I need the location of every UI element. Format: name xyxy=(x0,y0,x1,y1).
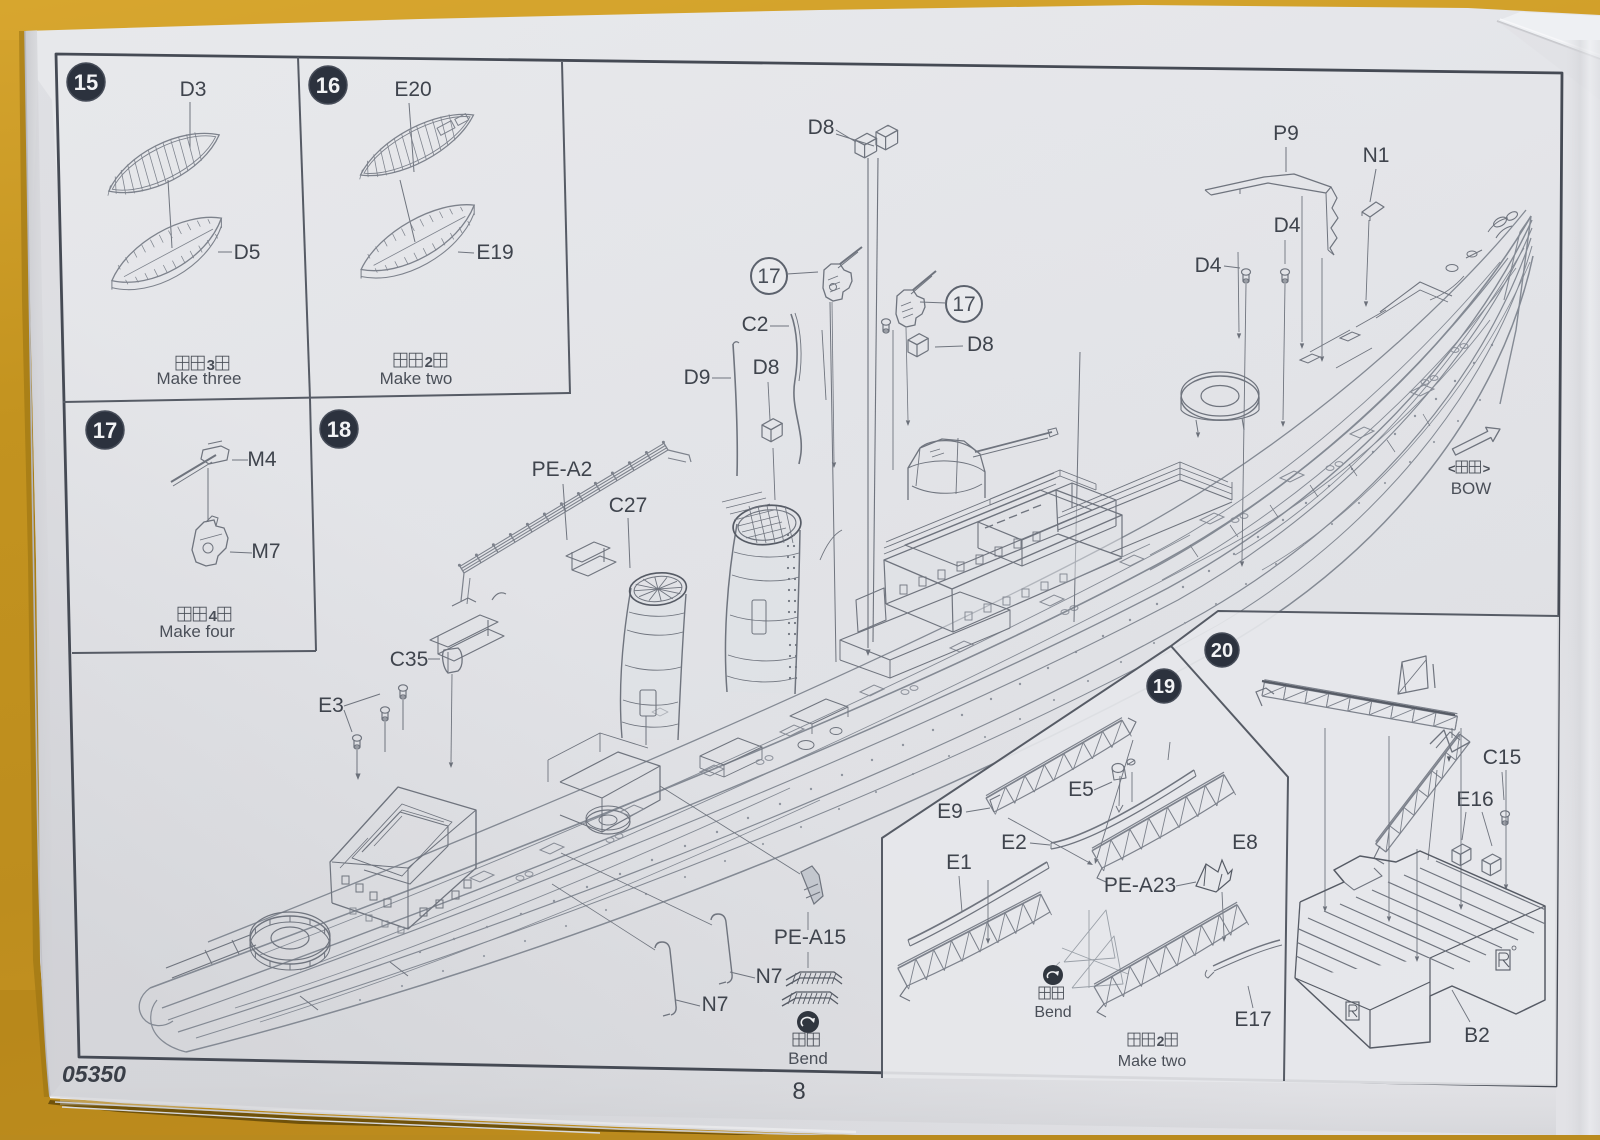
svg-text:PE-A15: PE-A15 xyxy=(774,926,846,949)
svg-text:P9: P9 xyxy=(1273,122,1299,145)
svg-text:N1: N1 xyxy=(1363,144,1390,167)
svg-text:8: 8 xyxy=(792,1078,805,1105)
svg-text:D8: D8 xyxy=(753,356,780,379)
svg-text:18: 18 xyxy=(327,417,351,442)
svg-text:E5: E5 xyxy=(1068,778,1094,801)
svg-text:19: 19 xyxy=(1153,676,1175,698)
svg-text:E9: E9 xyxy=(937,800,963,823)
svg-text:E19: E19 xyxy=(476,241,513,264)
svg-text:E3: E3 xyxy=(318,694,344,717)
svg-text:Bend: Bend xyxy=(1034,1004,1071,1021)
svg-text:Make four: Make four xyxy=(159,622,235,641)
svg-text:E17: E17 xyxy=(1234,1008,1271,1031)
svg-text:2: 2 xyxy=(1157,1033,1165,1049)
svg-text:>: > xyxy=(1483,461,1491,476)
svg-text:M7: M7 xyxy=(251,540,280,563)
svg-text:17: 17 xyxy=(93,418,117,443)
svg-text:E20: E20 xyxy=(394,78,431,101)
svg-text:17: 17 xyxy=(952,293,975,316)
svg-text:D5: D5 xyxy=(234,241,261,264)
svg-text:Make three: Make three xyxy=(156,369,241,388)
svg-text:D9: D9 xyxy=(684,366,711,389)
svg-text:17: 17 xyxy=(757,265,780,288)
svg-text:15: 15 xyxy=(74,70,98,95)
svg-text:20: 20 xyxy=(1211,640,1233,662)
svg-text:<: < xyxy=(1448,461,1456,476)
svg-text:05350: 05350 xyxy=(62,1061,126,1087)
svg-text:PE-A23: PE-A23 xyxy=(1104,874,1176,897)
svg-text:D8: D8 xyxy=(967,333,994,356)
svg-text:M4: M4 xyxy=(247,448,276,471)
svg-text:Make two: Make two xyxy=(380,369,453,388)
svg-text:C35: C35 xyxy=(390,648,429,671)
svg-text:E8: E8 xyxy=(1232,831,1258,854)
svg-text:PE-A2: PE-A2 xyxy=(532,458,593,481)
svg-text:16: 16 xyxy=(316,73,340,98)
svg-text:Make two: Make two xyxy=(1118,1053,1187,1070)
svg-text:Bend: Bend xyxy=(788,1049,828,1068)
svg-text:E16: E16 xyxy=(1456,788,1493,811)
svg-text:N7: N7 xyxy=(756,965,783,988)
svg-text:N7: N7 xyxy=(702,993,729,1016)
svg-text:C27: C27 xyxy=(609,494,648,517)
svg-text:C2: C2 xyxy=(742,313,769,336)
svg-text:D4: D4 xyxy=(1195,254,1222,277)
svg-text:C15: C15 xyxy=(1483,746,1522,769)
svg-text:B2: B2 xyxy=(1464,1024,1490,1047)
svg-text:D8: D8 xyxy=(808,116,835,139)
svg-text:D3: D3 xyxy=(180,78,207,101)
svg-text:E2: E2 xyxy=(1001,831,1027,854)
svg-text:D4: D4 xyxy=(1274,214,1301,237)
svg-text:BOW: BOW xyxy=(1451,479,1492,498)
svg-text:E1: E1 xyxy=(946,851,972,874)
